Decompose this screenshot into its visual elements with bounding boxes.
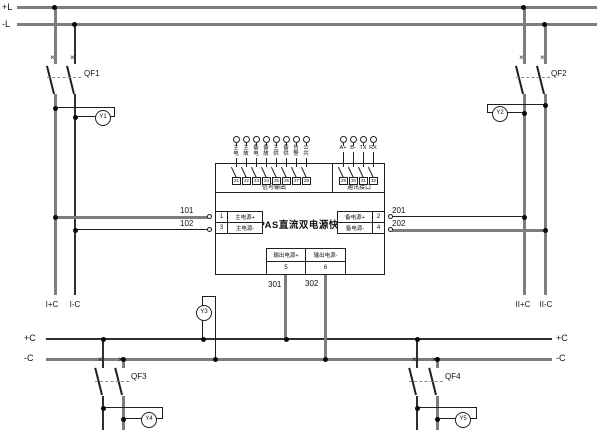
junction-dot <box>73 115 78 120</box>
bus-minus-c-label: -C <box>24 353 34 363</box>
breaker-contact-icon: × <box>50 54 55 62</box>
junction-dot <box>101 337 106 342</box>
wire-302-label: 302 <box>305 279 318 288</box>
junction-dot <box>213 357 218 362</box>
signal-terminal-circle <box>273 136 280 143</box>
indicator-y1: Y1 <box>95 110 111 126</box>
signal-terminal-number: 27 <box>292 177 301 185</box>
junction-dot <box>53 106 58 111</box>
junction-dot <box>543 103 548 108</box>
breaker-blade <box>536 66 545 95</box>
indicator-y4: Y4 <box>141 412 157 428</box>
comm-terminal-circle <box>360 136 367 143</box>
signal-terminal-number: 25 <box>272 177 281 185</box>
junction-dot <box>522 111 527 116</box>
breaker-link <box>95 381 129 382</box>
load1-pos-wire <box>102 396 104 430</box>
comm-terminal-number: 32 <box>369 177 378 185</box>
wire-201-label: 201 <box>392 206 405 215</box>
breaker-link <box>516 77 550 78</box>
comm-terminal-number: 29 <box>339 177 348 185</box>
feeder1-pos-wire <box>54 94 57 295</box>
breaker-blade <box>515 66 524 95</box>
wire-202-label: 202 <box>392 219 405 228</box>
junction-dot <box>521 5 526 10</box>
signal-terminal-circle <box>253 136 260 143</box>
breaker-contact-icon: × <box>412 356 417 364</box>
signal-terminal-label: 主电 <box>232 146 240 158</box>
signal-terminal-circle <box>233 136 240 143</box>
breaker-contact-icon: × <box>70 54 75 62</box>
breaker-link <box>409 381 443 382</box>
wire-101-label: 101 <box>180 206 193 215</box>
signal-terminal-label: 告警 <box>292 146 300 158</box>
bus-plus-l-label: +L <box>2 2 12 12</box>
comm-terminal-number: 30 <box>349 177 358 185</box>
bus-plus-l-line <box>17 6 597 9</box>
junction-dot <box>284 337 289 342</box>
signal-terminal-circle <box>293 136 300 143</box>
indicator-y5: Y5 <box>455 412 471 428</box>
breaker-contact-icon: × <box>519 54 524 62</box>
comm-terminal-number: 31 <box>359 177 368 185</box>
dc-dual-power-wiring-diagram: +L -L × × QF1 × × QF2 Y1 Y2 101 102 201 … <box>0 0 600 430</box>
bus-plus-c-label: +C <box>24 333 36 343</box>
feeder1-neg-tag: I-C <box>61 300 89 309</box>
terminal-circle <box>207 227 212 232</box>
bus-plus-c-label: +C <box>556 333 568 343</box>
junction-dot <box>415 406 420 411</box>
indicator-wire <box>215 296 216 359</box>
signal-terminal-number: 28 <box>302 177 311 185</box>
junction-dot <box>53 215 58 220</box>
wire-102 <box>75 229 208 230</box>
terminal-label-backup-neg: 备电源- <box>337 222 373 234</box>
indicator-wire <box>202 319 203 339</box>
breaker-contact-icon: × <box>98 356 103 364</box>
indicator-wire <box>55 107 115 108</box>
feeder2-pos-wire <box>523 94 526 295</box>
junction-dot <box>522 215 527 220</box>
signal-terminal-label: 备故 <box>262 146 270 158</box>
comm-terminal-circle <box>370 136 377 143</box>
wire-301 <box>284 274 287 339</box>
terminal-label-out-pos: 输出电源+ <box>266 248 306 262</box>
terminal-circle <box>388 214 393 219</box>
feeder2-neg-tag: II-C <box>529 300 563 309</box>
signal-terminal-circle <box>243 136 250 143</box>
breaker-blade <box>66 66 75 95</box>
signal-terminal-circle <box>303 136 310 143</box>
comm-terminal-label: TX <box>359 146 367 152</box>
bus-minus-c-label: -C <box>556 353 566 363</box>
indicator-wire <box>417 407 477 408</box>
bus-plus-c-line <box>46 338 552 340</box>
load1-neg-wire <box>122 396 125 430</box>
junction-dot <box>542 22 547 27</box>
junction-dot <box>52 5 57 10</box>
signal-terminal-number: 26 <box>282 177 291 185</box>
comm-terminal-label: A+ <box>339 146 347 152</box>
signal-terminal-circle <box>283 136 290 143</box>
junction-dot <box>121 417 126 422</box>
breaker-qf1-label: QF1 <box>84 69 100 78</box>
comm-section-label: 通讯接口 <box>333 185 385 192</box>
junction-dot <box>101 406 106 411</box>
breaker-link <box>47 77 81 78</box>
junction-dot <box>435 357 440 362</box>
terminal-no-out-pos: 5 <box>266 261 306 275</box>
indicator-y3: Y3 <box>196 305 212 321</box>
terminal-no-out-neg: 6 <box>305 261 346 275</box>
terminal-label-main-neg: 主电源- <box>227 222 263 234</box>
junction-dot <box>323 357 328 362</box>
breaker-qf3-label: QF3 <box>131 372 147 381</box>
indicator-wire <box>75 116 95 117</box>
bus-minus-l-label: -L <box>2 19 10 29</box>
signal-terminal-label: 备电 <box>252 146 260 158</box>
signal-terminal-number: 24 <box>262 177 271 185</box>
wire-202 <box>392 229 545 232</box>
junction-dot <box>435 417 440 422</box>
signal-terminal-label: 主供 <box>272 146 280 158</box>
signal-section-label: 信号输出 <box>216 185 332 192</box>
load2-neg-wire <box>436 396 439 430</box>
wire-201 <box>392 216 524 217</box>
breaker-qf4-label: QF4 <box>445 372 461 381</box>
load2-pos-wire <box>416 396 418 430</box>
signal-terminal-label: 备供 <box>282 146 290 158</box>
junction-dot <box>73 228 78 233</box>
indicator-wire <box>103 407 163 408</box>
comm-terminal-label: B- <box>349 146 357 152</box>
comm-terminal-circle <box>340 136 347 143</box>
terminal-label-out-neg: 输出电源- <box>305 248 346 262</box>
wire-102-label: 102 <box>180 219 193 228</box>
signal-terminal-number: 22 <box>242 177 251 185</box>
comm-terminal-label: RX <box>369 146 377 152</box>
module-header-divider <box>215 192 385 193</box>
breaker-contact-icon: × <box>540 54 545 62</box>
wire-301-label: 301 <box>268 280 281 289</box>
terminal-no-backup-neg: 4 <box>372 222 385 234</box>
bus-minus-l-line <box>17 23 597 26</box>
breaker-blade <box>46 66 55 95</box>
wire-302 <box>324 274 327 360</box>
terminal-circle <box>388 227 393 232</box>
signal-terminal-circle <box>263 136 270 143</box>
signal-terminal-number: 23 <box>252 177 261 185</box>
junction-dot <box>121 357 126 362</box>
junction-dot <box>415 337 420 342</box>
signal-terminal-label: 主故 <box>242 146 250 158</box>
signal-terminal-number: 21 <box>232 177 241 185</box>
signal-terminal-label: 公共 <box>302 146 310 158</box>
indicator-y2: Y2 <box>492 106 508 122</box>
junction-dot <box>72 22 77 27</box>
comm-terminal-circle <box>350 136 357 143</box>
junction-dot <box>201 337 206 342</box>
junction-dot <box>543 228 548 233</box>
indicator-wire <box>487 104 545 105</box>
feeder2-neg-wire <box>544 94 547 295</box>
terminal-circle <box>207 214 212 219</box>
feeder1-neg-wire <box>74 94 76 295</box>
breaker-qf2-label: QF2 <box>551 69 567 78</box>
